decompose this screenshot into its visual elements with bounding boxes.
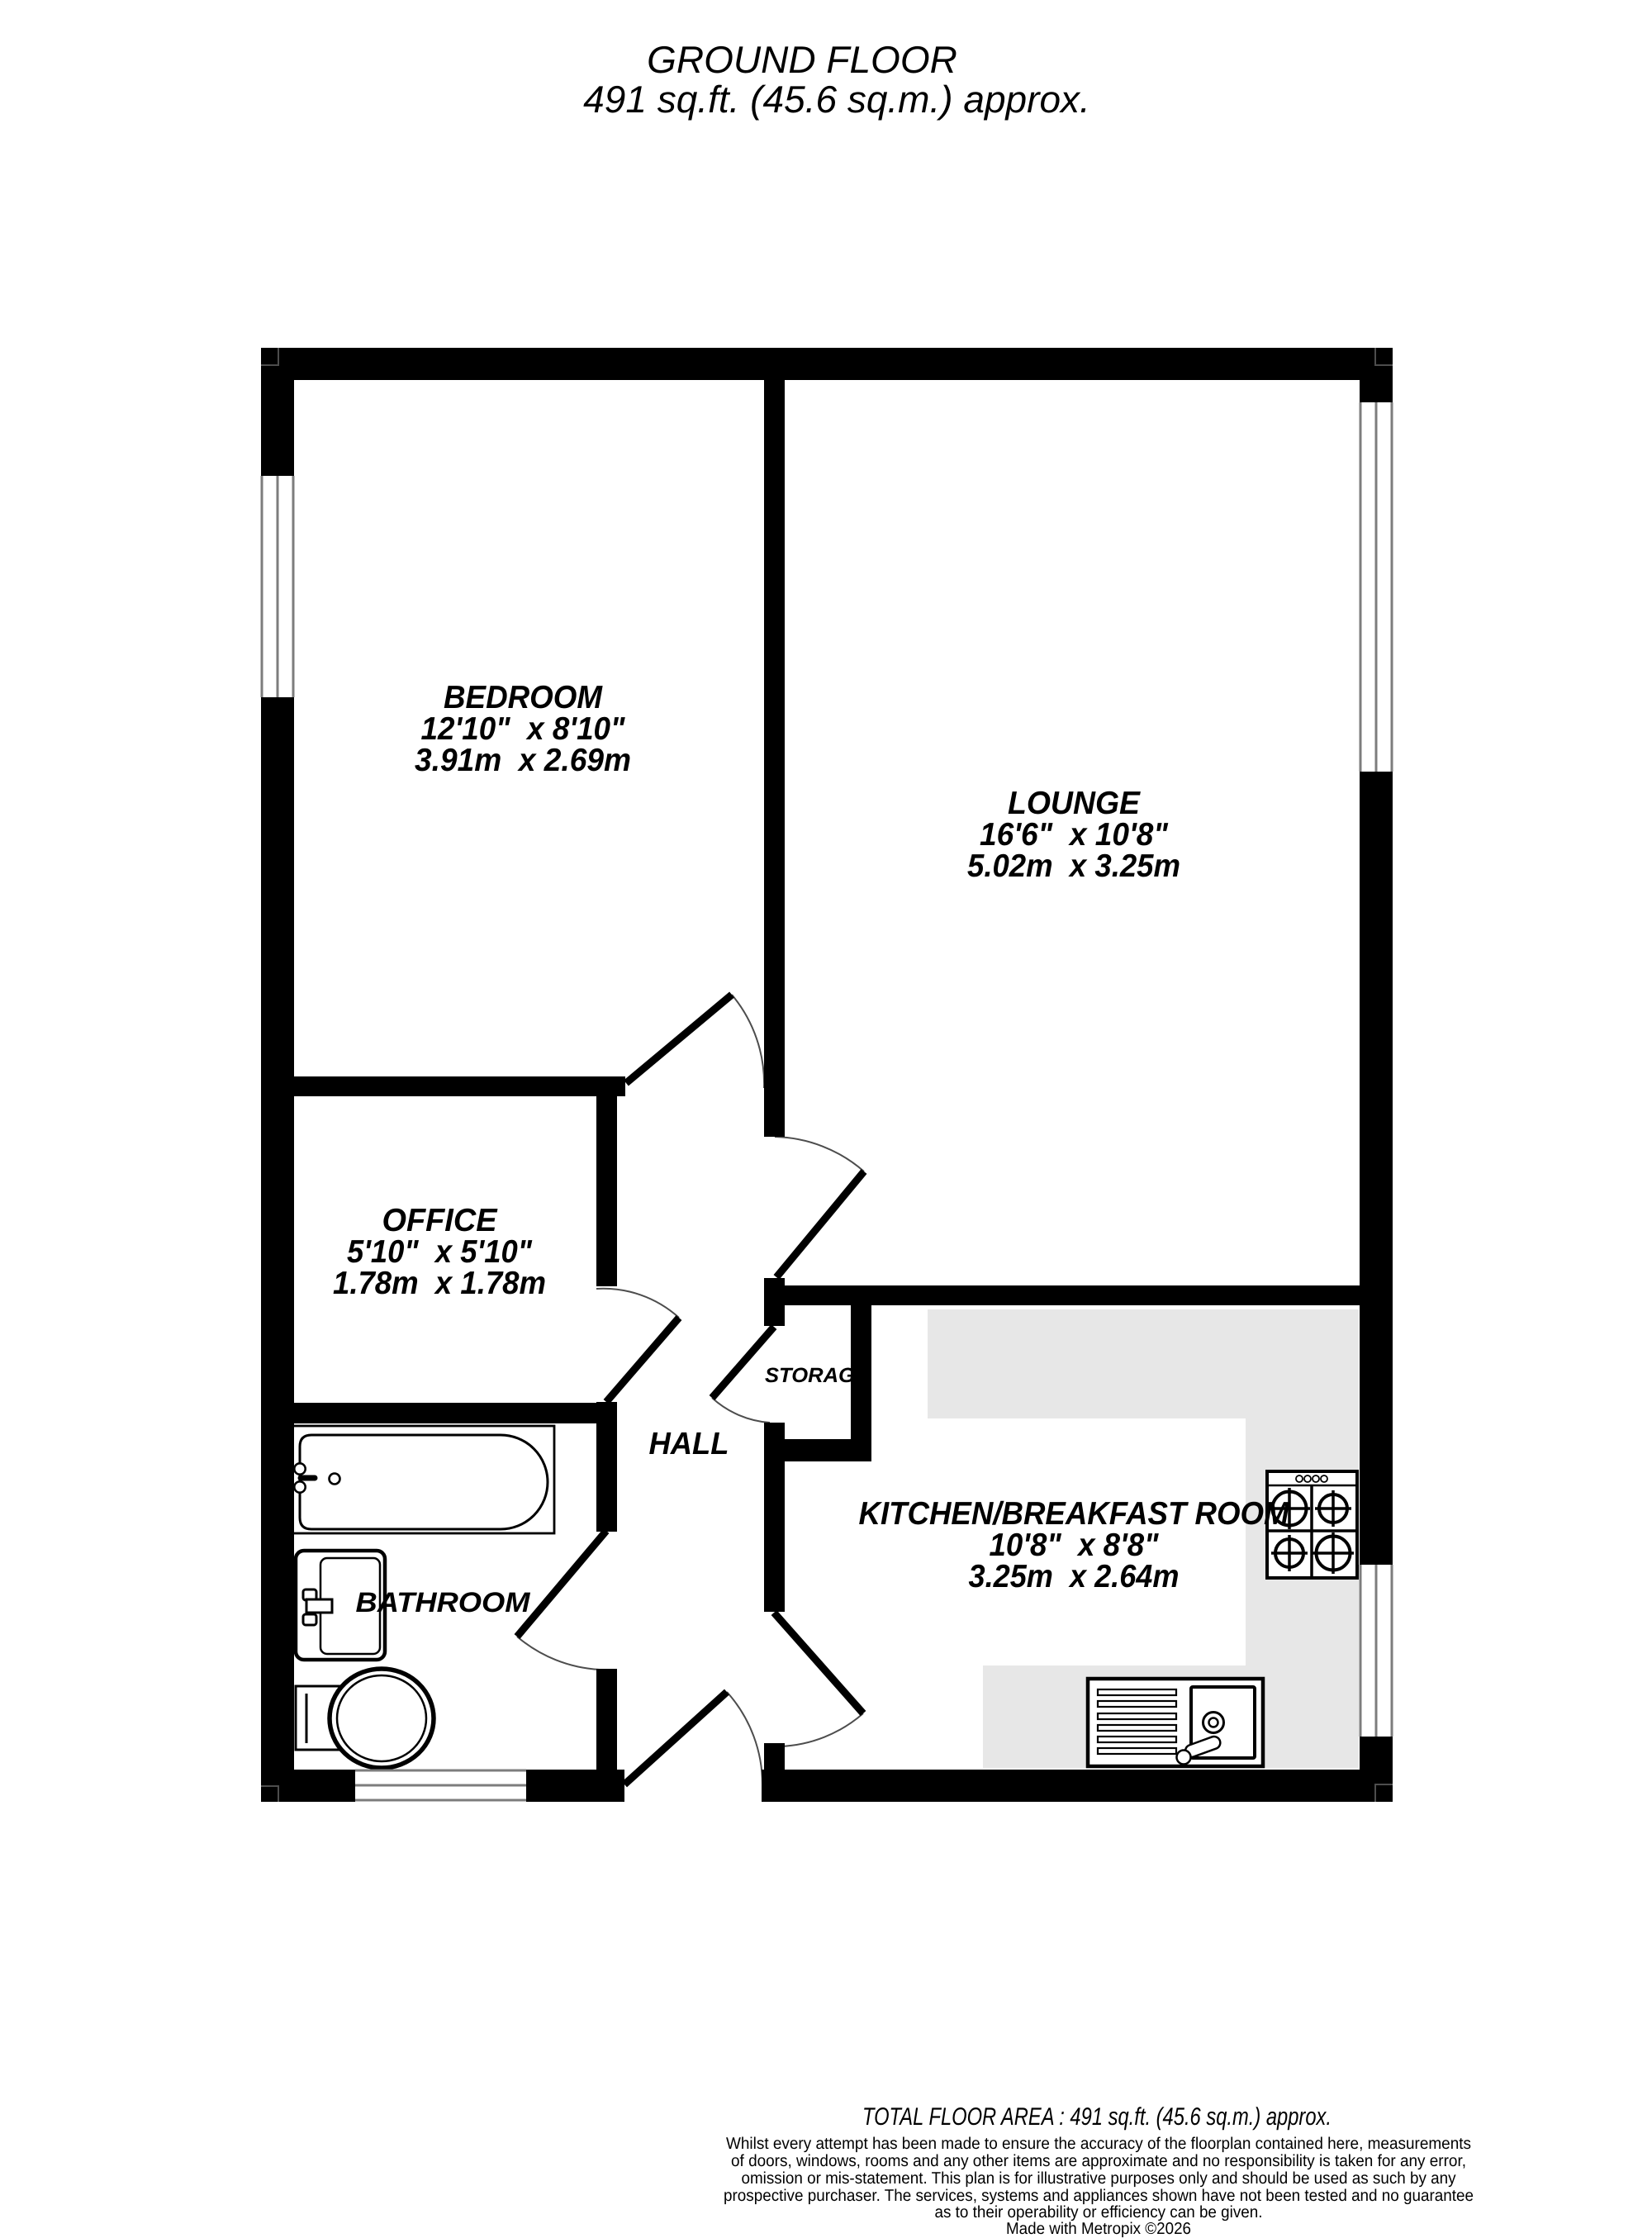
svg-text:GROUND FLOOR: GROUND FLOOR xyxy=(647,38,957,81)
svg-text:BEDROOM: BEDROOM xyxy=(444,680,603,715)
svg-text:5'10" x 5'10": 5'10" x 5'10" xyxy=(347,1234,532,1270)
svg-text:3.91m x 2.69m: 3.91m x 2.69m xyxy=(415,743,631,778)
svg-text:16'6" x 10'8": 16'6" x 10'8" xyxy=(980,817,1168,853)
svg-text:omission or mis-statement. Thi: omission or mis-statement. This plan is … xyxy=(742,2169,1456,2188)
svg-text:1.78m x 1.78m: 1.78m x 1.78m xyxy=(333,1266,546,1301)
svg-text:Whilst every attempt has been: Whilst every attempt has been made to en… xyxy=(726,2135,1471,2153)
svg-text:prospective purchaser. The ser: prospective purchaser. The services, sys… xyxy=(724,2187,1474,2205)
svg-text:HALL: HALL xyxy=(649,1427,729,1461)
svg-text:LOUNGE: LOUNGE xyxy=(1008,786,1141,821)
svg-text:Made with Metropix ©2026: Made with Metropix ©2026 xyxy=(1006,2220,1191,2238)
svg-text:491 sq.ft. (45.6 sq.m.) approx: 491 sq.ft. (45.6 sq.m.) approx. xyxy=(583,78,1090,121)
svg-text:KITCHEN/BREAKFAST ROOM: KITCHEN/BREAKFAST ROOM xyxy=(859,1496,1290,1532)
svg-text:5.02m x 3.25m: 5.02m x 3.25m xyxy=(967,848,1180,884)
svg-text:10'8" x 8'8": 10'8" x 8'8" xyxy=(990,1528,1159,1563)
svg-text:3.25m x 2.64m: 3.25m x 2.64m xyxy=(969,1559,1180,1594)
svg-text:TOTAL FLOOR AREA : 491 sq.ft.: TOTAL FLOOR AREA : 491 sq.ft. (45.6 sq.m… xyxy=(862,2103,1332,2131)
svg-text:12'10" x 8'10": 12'10" x 8'10" xyxy=(421,711,625,747)
svg-text:as to their operability or eff: as to their operability or efficiency ca… xyxy=(935,2203,1263,2221)
svg-text:BATHROOM: BATHROOM xyxy=(356,1587,531,1618)
svg-text:OFFICE: OFFICE xyxy=(382,1203,498,1238)
svg-text:of doors, windows, rooms and a: of doors, windows, rooms and any other i… xyxy=(731,2152,1466,2170)
